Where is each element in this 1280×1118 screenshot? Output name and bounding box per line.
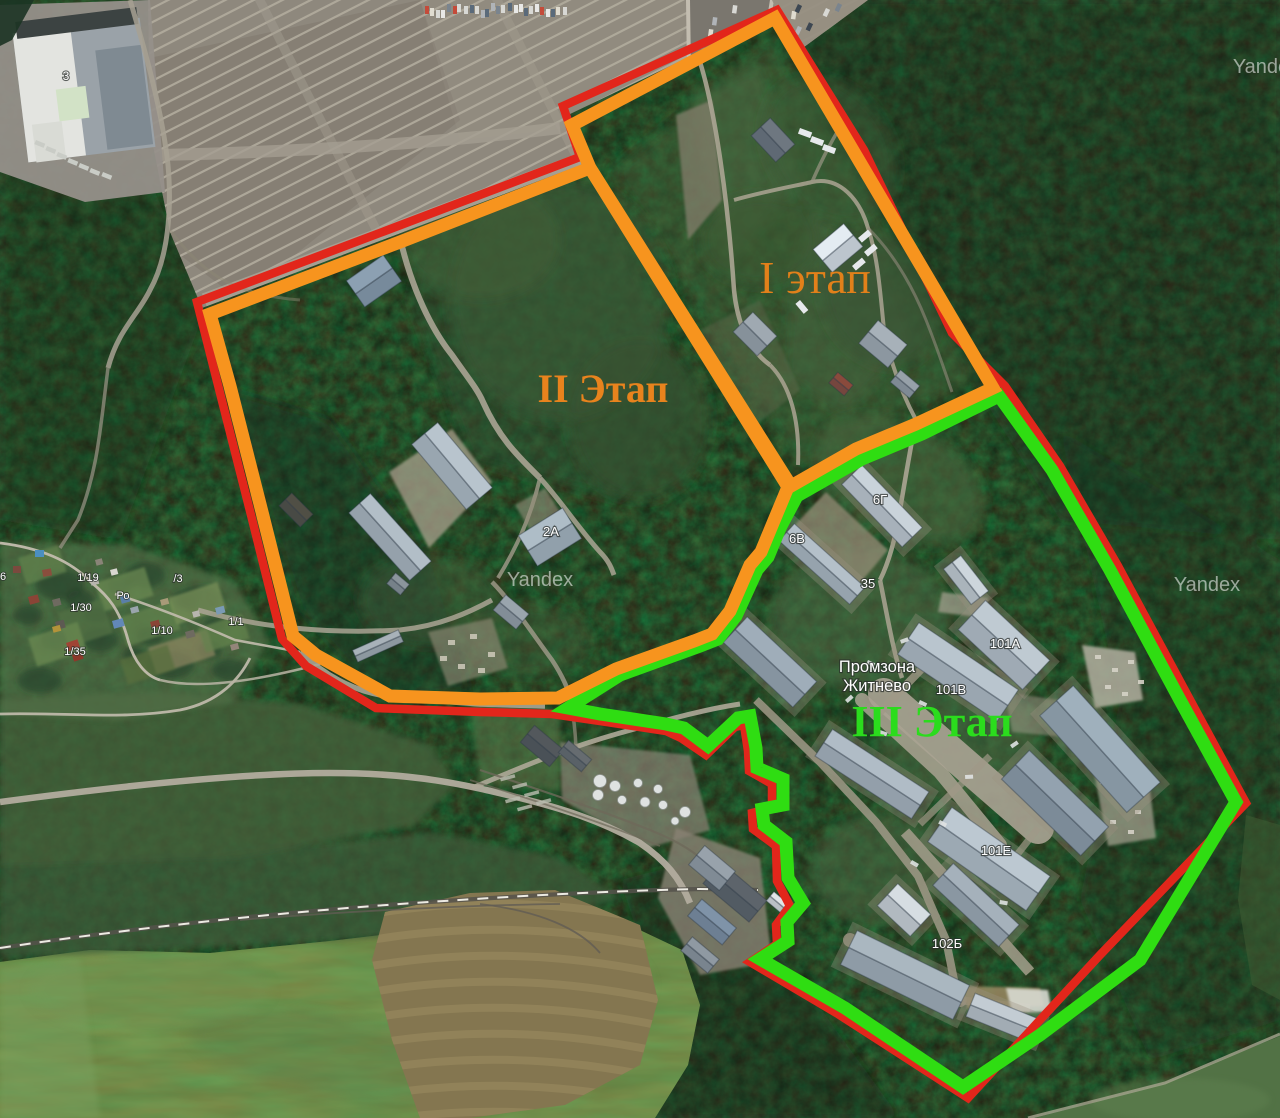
- svg-text:Житнево: Житнево: [843, 677, 911, 695]
- svg-text:Yandex: Yandex: [1174, 574, 1240, 596]
- svg-text:6Г: 6Г: [873, 492, 887, 507]
- svg-text:1/19: 1/19: [77, 572, 98, 584]
- svg-text:6В: 6В: [789, 531, 805, 546]
- svg-text:1/10: 1/10: [151, 625, 172, 637]
- svg-text:2А: 2А: [543, 524, 559, 539]
- svg-text:Промзона: Промзона: [839, 658, 916, 676]
- svg-text:1/1: 1/1: [228, 616, 243, 628]
- svg-text:6: 6: [0, 571, 6, 583]
- svg-text:I этап: I этап: [759, 252, 871, 303]
- svg-text:35: 35: [861, 576, 875, 591]
- svg-text:1/30: 1/30: [70, 602, 91, 614]
- svg-text:101А: 101А: [990, 636, 1021, 651]
- svg-text:102Б: 102Б: [932, 936, 962, 951]
- svg-text:1/35: 1/35: [64, 646, 85, 658]
- svg-text:Yandex: Yandex: [507, 569, 573, 591]
- svg-text:Ро: Ро: [117, 590, 130, 602]
- svg-text:II Этап: II Этап: [538, 366, 669, 411]
- svg-text:101В: 101В: [936, 682, 966, 697]
- svg-text:Yandex: Yandex: [1233, 56, 1280, 78]
- svg-text:/3: /3: [173, 573, 182, 585]
- svg-text:III Этап: III Этап: [851, 697, 1012, 746]
- svg-text:3: 3: [63, 69, 70, 83]
- svg-text:101Е: 101Е: [981, 843, 1012, 858]
